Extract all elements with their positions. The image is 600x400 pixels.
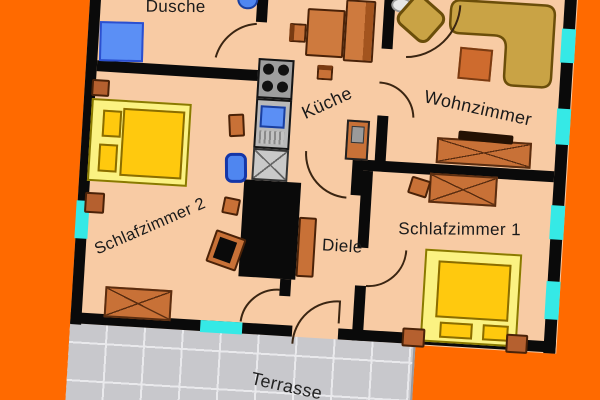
kitchen-sink-unit: [253, 98, 292, 150]
pillow: [482, 324, 509, 342]
window-right-2: [555, 108, 571, 145]
room-label-schlafzimmer1: Schlafzimmer 1: [398, 219, 521, 240]
kitchen-chair: [289, 23, 307, 43]
mattress: [435, 260, 511, 321]
dresser-schlafzimmer1: [428, 173, 498, 207]
kitchen-sink-basin: [259, 105, 285, 128]
nightstand: [91, 79, 110, 97]
stool: [228, 113, 245, 137]
wall-corridor-stub: [279, 279, 291, 297]
stove-burner: [262, 80, 274, 92]
washing-machine: [345, 120, 370, 161]
apartment-plan: Dusche Küche Wohnzimmer Schlafzimmer 2 S…: [0, 0, 600, 400]
stove-burner: [277, 81, 289, 93]
desk-chair-seat: [213, 237, 237, 264]
kitchen-base-cabinet: [251, 148, 289, 182]
room-label-diele: Diele: [321, 235, 363, 257]
floor-plan-image: Dusche Küche Wohnzimmer Schlafzimmer 2 S…: [0, 0, 600, 400]
bed-schlafzimmer2: [87, 98, 192, 187]
kitchen-sink-drainer: [259, 130, 285, 145]
dresser-schlafzimmer2: [104, 286, 173, 321]
blue-chair: [225, 153, 247, 183]
stove: [256, 58, 294, 100]
washing-machine-door: [351, 126, 365, 144]
shower-tray: [99, 21, 144, 62]
window-bottom: [200, 320, 243, 335]
stove-burner: [278, 64, 290, 76]
coffee-table: [457, 47, 493, 82]
pillow: [102, 110, 123, 138]
nightstand: [505, 334, 528, 354]
kitchen-cupboard: [343, 0, 377, 63]
nightstand: [401, 327, 425, 347]
nightstand: [84, 192, 105, 214]
pillow: [439, 322, 473, 340]
stool: [221, 196, 241, 216]
bed-schlafzimmer1: [420, 249, 522, 348]
kitchen-table: [305, 8, 346, 58]
mattress: [119, 108, 185, 180]
stove-burner: [263, 63, 275, 75]
pillow: [97, 143, 118, 172]
window-right-3: [549, 205, 565, 240]
kitchen-chair: [317, 65, 334, 81]
hall-cabinet: [295, 217, 317, 278]
room-label-dusche: Dusche: [146, 0, 206, 17]
window-right-4: [544, 281, 560, 320]
chimney-block: [238, 179, 301, 279]
window-right-1: [560, 29, 576, 64]
